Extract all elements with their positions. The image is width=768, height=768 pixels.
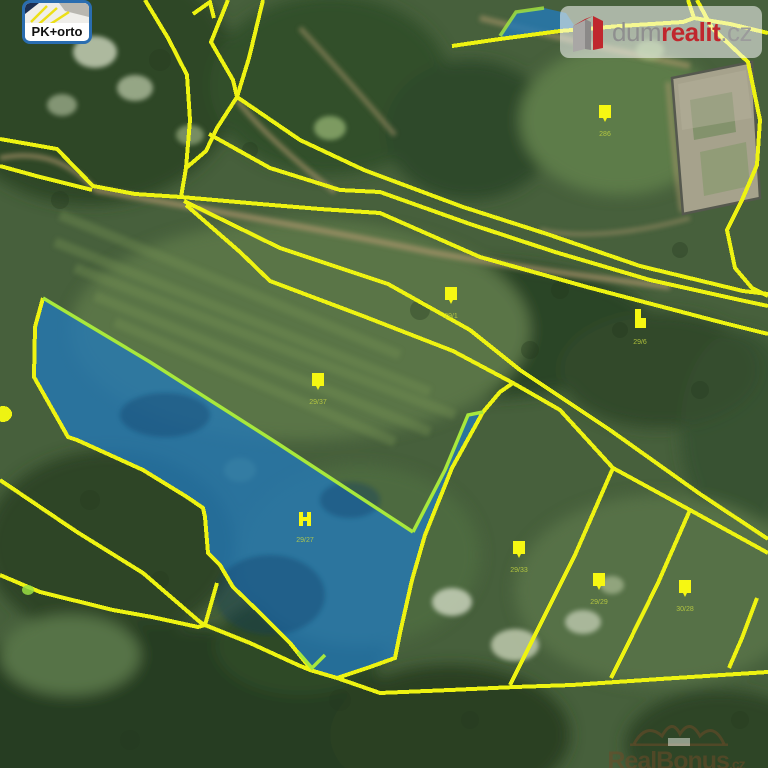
dumrealit-house-icon — [570, 12, 606, 52]
cadastral-map-canvas[interactable]: 28629/129/3729/629/2729/3329/2930/28 — [0, 0, 768, 768]
parcel-number-label: 29/6 — [633, 339, 647, 346]
parcel-number-label: 286 — [599, 131, 611, 138]
parcel-number-label: 29/29 — [590, 599, 608, 606]
map-thumbnail-icon — [25, 3, 89, 23]
dumrealit-logo: dumrealit.cz — [560, 6, 762, 58]
parcel-number-label: 29/37 — [309, 399, 327, 406]
parcel-number-label: 29/33 — [510, 567, 528, 574]
dumrealit-wordmark: dumrealit.cz — [612, 17, 752, 48]
parcel-number-label: 29/1 — [444, 313, 458, 320]
parcel-number-label: 29/27 — [296, 537, 314, 544]
map-mode-badge[interactable]: PK+orto — [22, 0, 92, 44]
map-mode-label: PK+orto — [25, 23, 89, 40]
parcel-number-label: 30/28 — [676, 606, 694, 613]
orthophoto-map-view: 28629/129/3729/629/2729/3329/2930/28 PK+… — [0, 0, 768, 768]
